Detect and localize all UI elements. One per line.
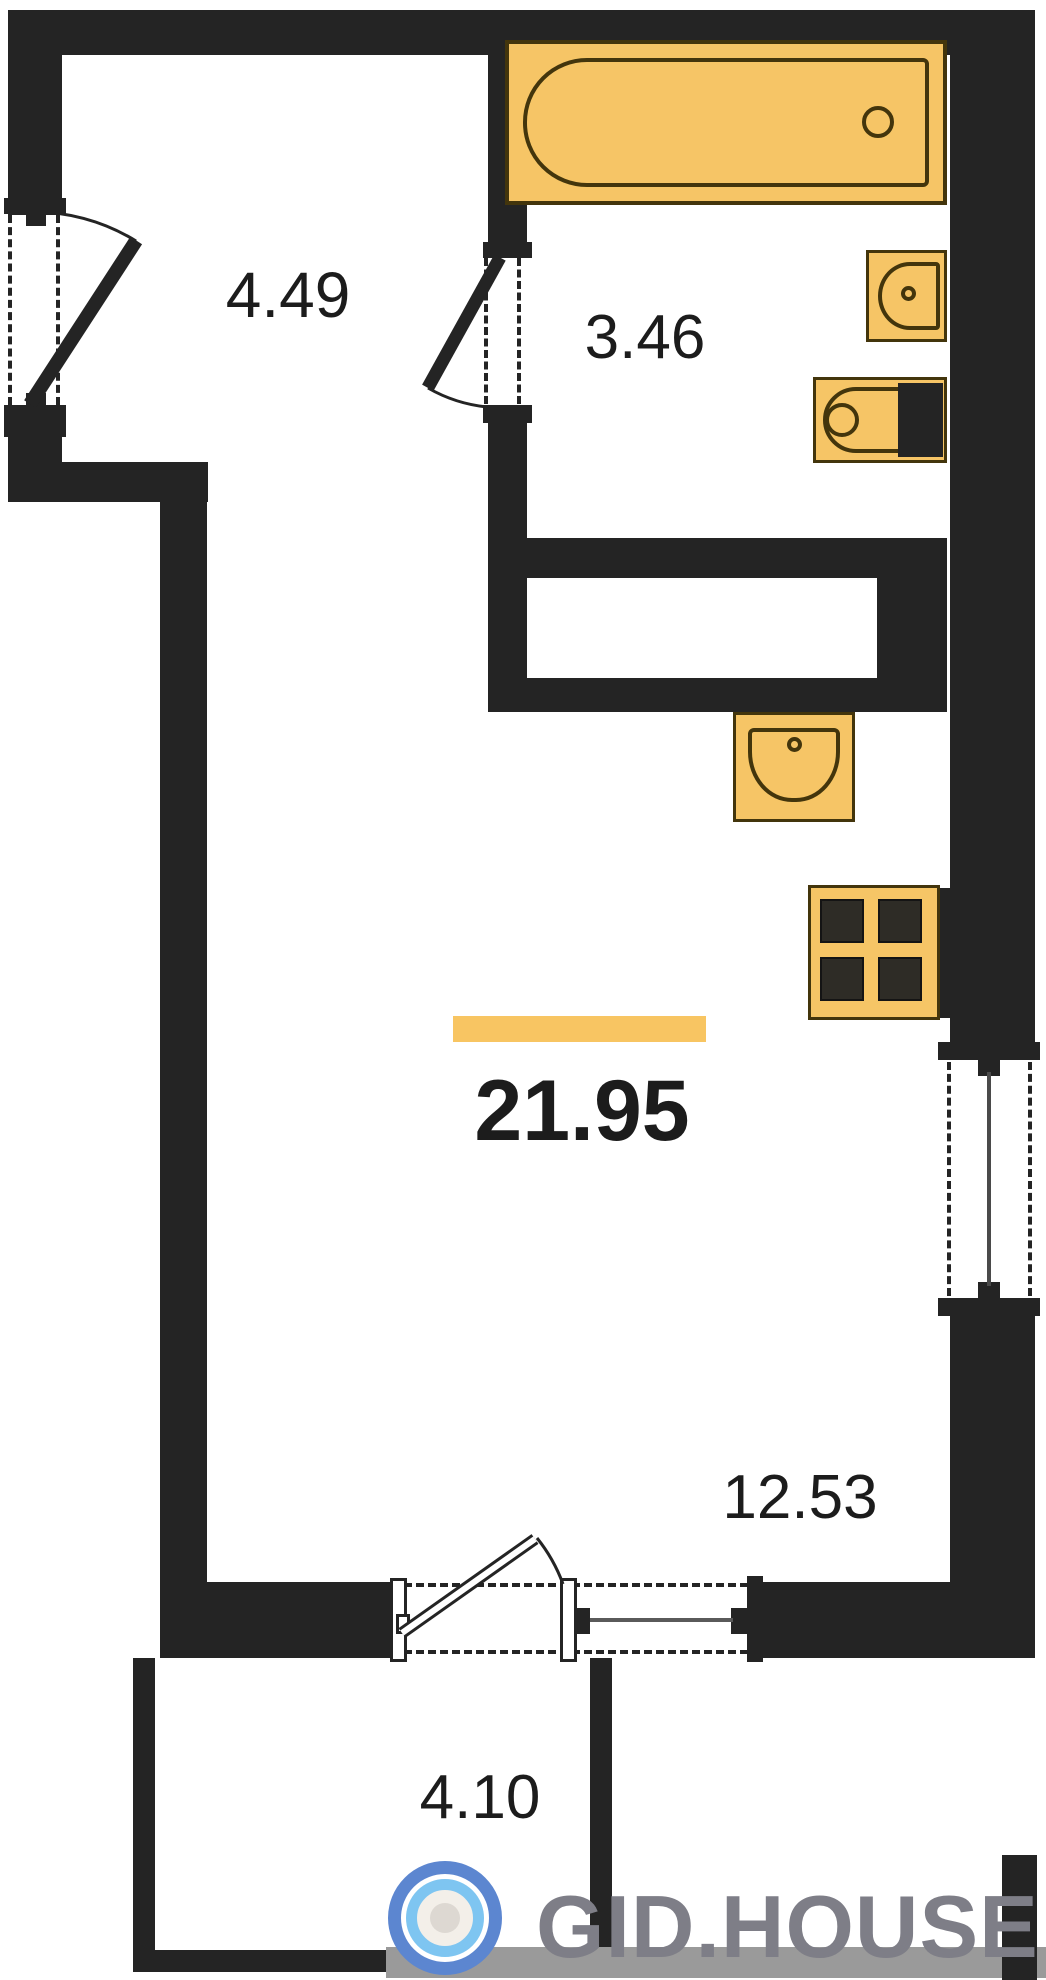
bathroom-door-frame-dashed-right: [517, 258, 521, 404]
balcony-window-connector-left: [576, 1608, 590, 1634]
room-label-balcony: 4.10: [370, 1762, 590, 1833]
wall-left-upper: [8, 10, 62, 215]
floor-plan-canvas: 4.49 3.46 21.95 12.53 4.10 GID.HOUSE: [0, 0, 1046, 1980]
wash-basin-drain-icon: [901, 286, 916, 301]
wall-duct-top: [527, 538, 877, 578]
balcony-window-connector-right: [731, 1608, 747, 1634]
entrance-door-frame-dashed-inner: [56, 215, 60, 405]
right-window-connector-bottom: [978, 1282, 1000, 1300]
bathtub-drain-icon: [862, 106, 894, 138]
right-window-dashed-outer: [1028, 1062, 1032, 1296]
room-label-studio-total: 21.95: [432, 1062, 732, 1161]
toilet-drain-icon: [825, 403, 859, 437]
balcony-wall-left: [133, 1658, 155, 1972]
entrance-door-jamb-top: [4, 198, 66, 214]
stove-burner-icon: [820, 957, 864, 1001]
right-window-connector-top: [978, 1058, 1000, 1076]
room-label-bathroom: 3.46: [537, 302, 753, 373]
watermark-brand-text: GID.HOUSE: [536, 1876, 1039, 1978]
stove-burner-icon: [878, 899, 922, 943]
right-window-cap-bottom: [938, 1298, 1040, 1316]
right-window-dashed-inner: [947, 1062, 951, 1296]
area-highlight-bar: [453, 1016, 706, 1042]
bathroom-door-jamb-top: [483, 242, 532, 258]
stove-burner-icon: [820, 899, 864, 943]
wall-room-left: [160, 462, 207, 1658]
wall-duct-bottom: [488, 678, 947, 712]
entrance-door-frame-dashed-outer: [8, 215, 12, 405]
wall-center-lower: [488, 423, 527, 712]
room-label-living-zone: 12.53: [690, 1462, 910, 1533]
wall-bottom-left-section: [160, 1582, 390, 1658]
toilet-tank: [898, 383, 943, 457]
bathroom-door-jamb-bottom: [483, 405, 532, 423]
kitchen-sink-faucet-icon: [787, 737, 802, 752]
entrance-door-jamb-bottom: [4, 405, 66, 437]
stove-burner-icon: [878, 957, 922, 1001]
bathroom-door-leaf: [422, 254, 506, 391]
entrance-door-jamb-top-tooth: [26, 214, 46, 226]
bathroom-door-swing-arc: [428, 388, 487, 407]
gid-house-logo-core-icon: [430, 1903, 460, 1933]
balcony-window-post-right: [747, 1576, 763, 1662]
balcony-door-frame-post-right: [560, 1578, 577, 1662]
wall-bottom-right-section: [763, 1582, 1035, 1658]
stove: [808, 885, 940, 1020]
entrance-door-leaf: [24, 237, 142, 408]
wall-right-upper: [950, 10, 1035, 1042]
room-label-entrance-hall: 4.49: [180, 258, 396, 332]
balcony-door-hinge: [396, 1614, 410, 1634]
